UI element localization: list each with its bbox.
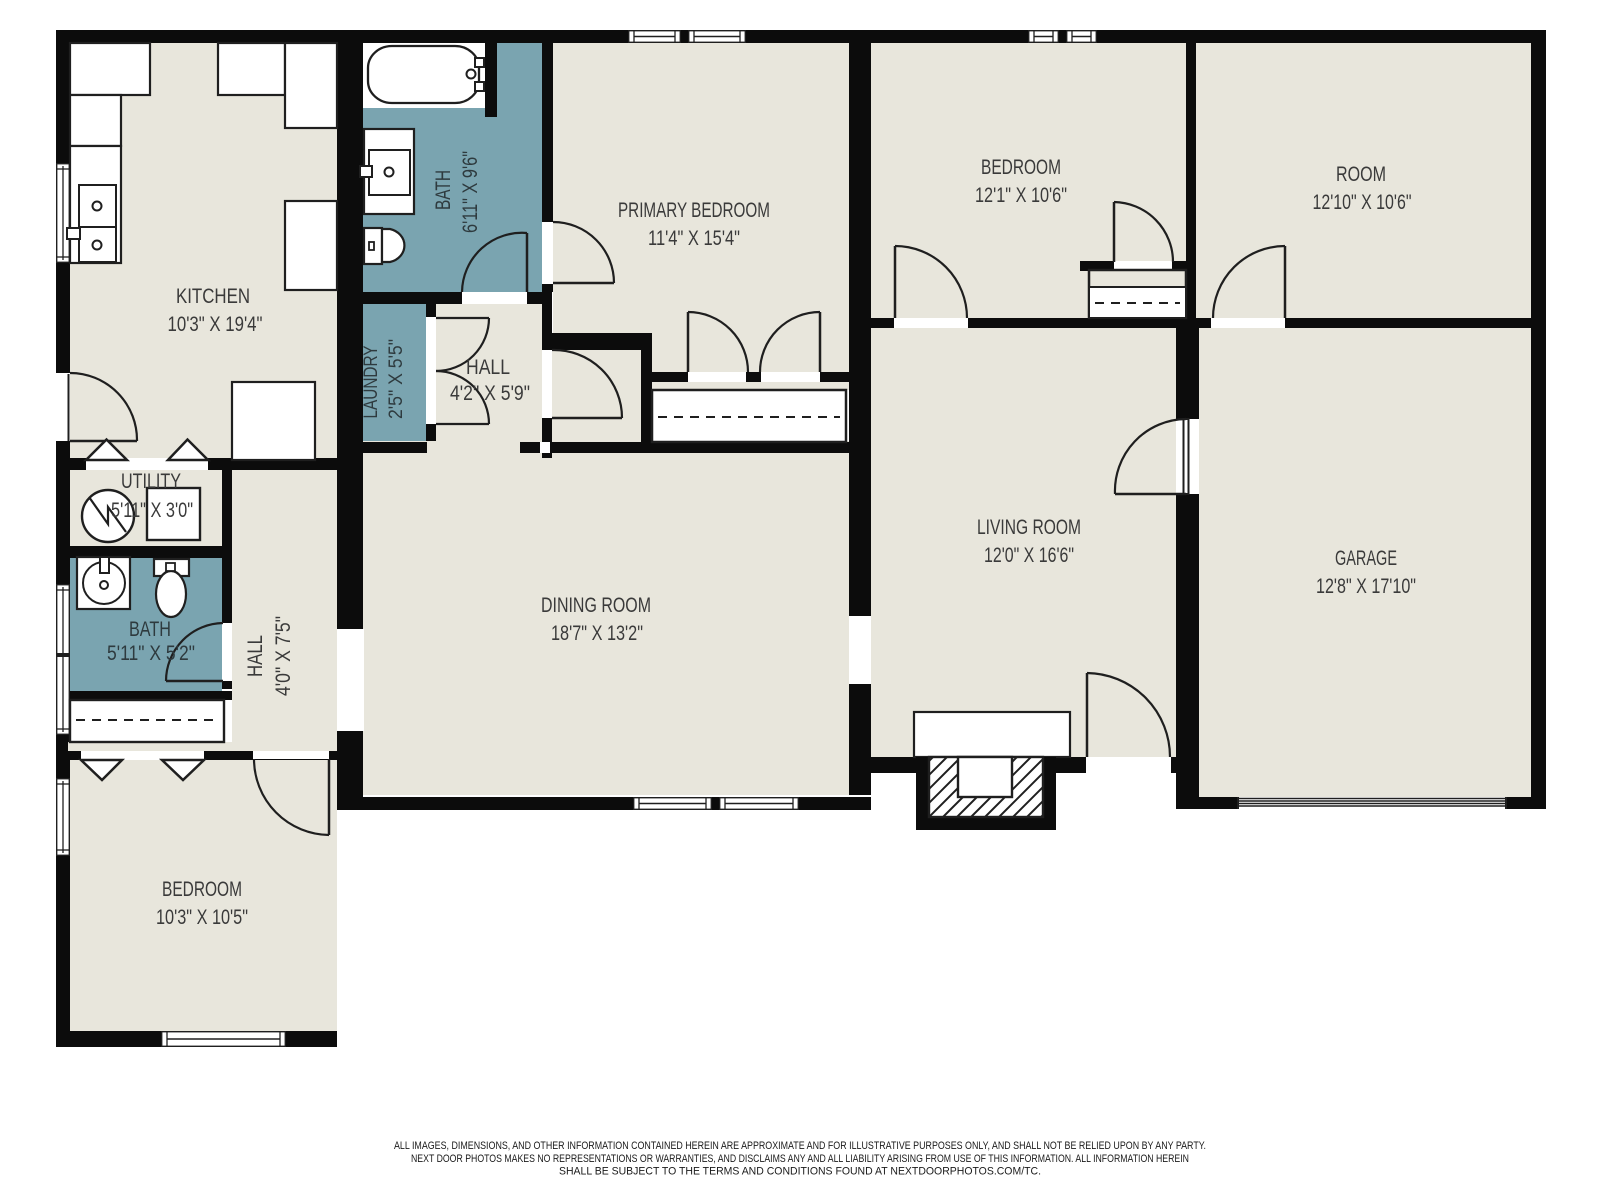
- svg-text:BATH: BATH: [129, 618, 171, 641]
- svg-text:12'0" X 16'6": 12'0" X 16'6": [984, 544, 1074, 567]
- svg-text:ALL IMAGES, DIMENSIONS, AND OT: ALL IMAGES, DIMENSIONS, AND OTHER INFORM…: [394, 1140, 1206, 1152]
- svg-text:11'4" X 15'4": 11'4" X 15'4": [648, 227, 740, 250]
- svg-text:BEDROOM: BEDROOM: [981, 156, 1061, 179]
- svg-text:LIVING ROOM: LIVING ROOM: [977, 516, 1081, 539]
- svg-text:5'11" X 3'0": 5'11" X 3'0": [111, 499, 193, 522]
- svg-text:UTILITY: UTILITY: [121, 470, 181, 493]
- svg-text:10'3" X 19'4": 10'3" X 19'4": [168, 313, 263, 336]
- svg-text:4'0" X 7'5": 4'0" X 7'5": [272, 616, 295, 696]
- svg-text:GARAGE: GARAGE: [1335, 547, 1397, 570]
- svg-text:18'7" X 13'2": 18'7" X 13'2": [551, 622, 643, 645]
- svg-text:NEXT DOOR PHOTOS MAKES NO REPR: NEXT DOOR PHOTOS MAKES NO REPRESENTATION…: [411, 1153, 1189, 1165]
- svg-text:DINING ROOM: DINING ROOM: [541, 594, 651, 617]
- svg-text:12'8" X 17'10": 12'8" X 17'10": [1316, 575, 1416, 598]
- svg-text:10'3" X 10'5": 10'3" X 10'5": [156, 906, 248, 929]
- svg-text:6'11" X 9'6": 6'11" X 9'6": [459, 151, 482, 233]
- svg-text:ROOM: ROOM: [1336, 163, 1386, 186]
- svg-text:PRIMARY BEDROOM: PRIMARY BEDROOM: [618, 199, 770, 222]
- svg-text:2'5" X 5'5": 2'5" X 5'5": [386, 339, 407, 419]
- svg-text:HALL: HALL: [466, 356, 510, 379]
- svg-text:5'11" X 5'2": 5'11" X 5'2": [107, 642, 195, 665]
- svg-text:12'1" X 10'6": 12'1" X 10'6": [975, 184, 1067, 207]
- svg-text:12'10" X 10'6": 12'10" X 10'6": [1313, 191, 1412, 214]
- svg-text:BEDROOM: BEDROOM: [162, 878, 242, 901]
- svg-text:4'2" X 5'9": 4'2" X 5'9": [450, 382, 530, 405]
- svg-text:KITCHEN: KITCHEN: [176, 285, 250, 308]
- svg-text:BATH: BATH: [432, 170, 455, 210]
- svg-text:HALL: HALL: [244, 635, 267, 677]
- svg-text:SHALL BE SUBJECT TO THE TERMS: SHALL BE SUBJECT TO THE TERMS AND CONDIT…: [559, 1166, 1041, 1178]
- svg-text:LAUNDRY: LAUNDRY: [361, 345, 382, 418]
